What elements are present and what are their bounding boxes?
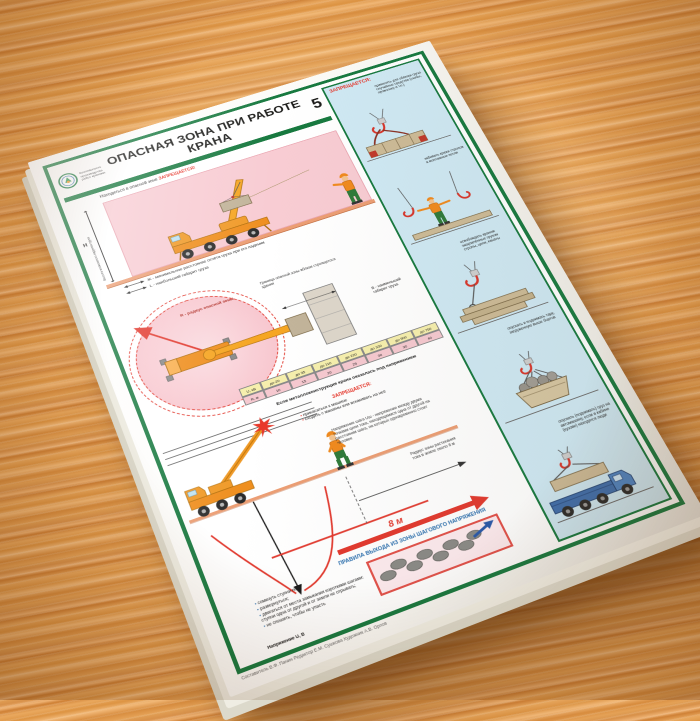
hook-icon — [458, 190, 471, 200]
load-size-label: В - наименьший габарит груза — [371, 272, 416, 293]
load-over-truck-illustration — [524, 426, 660, 531]
poster-number: 5 — [309, 96, 325, 113]
height-symbol: Н — [83, 243, 89, 249]
hook-icon — [464, 276, 480, 287]
building-illustration — [303, 283, 357, 344]
current-arrow — [253, 499, 298, 590]
org-logo-text: Безопасность производства работ кранами — [79, 165, 106, 182]
hook-icon — [559, 458, 572, 468]
hook-icon — [402, 208, 415, 218]
org-logo-icon — [55, 170, 81, 191]
height-dimension-label: Высота возможного падения груза — [79, 217, 107, 281]
